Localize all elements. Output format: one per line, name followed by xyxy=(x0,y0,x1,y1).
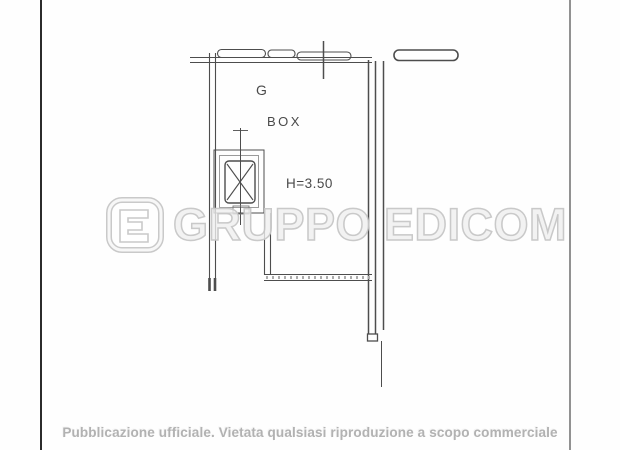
watermark: GRUPPO EDICOM xyxy=(104,196,567,254)
height-label: H=3.50 xyxy=(286,176,333,191)
room-label: BOX xyxy=(267,114,302,129)
scanned-floorplan-page: G BOX H=3.50 GRUPPO EDICOM Pubblicazione… xyxy=(0,0,620,450)
official-publication-notice: Pubblicazione ufficiale. Vietata qualsia… xyxy=(9,424,610,440)
edicom-logo-icon xyxy=(104,196,166,254)
reference-label: G xyxy=(256,82,267,98)
watermark-text: GRUPPO EDICOM xyxy=(173,196,567,254)
left-wall xyxy=(210,53,216,291)
